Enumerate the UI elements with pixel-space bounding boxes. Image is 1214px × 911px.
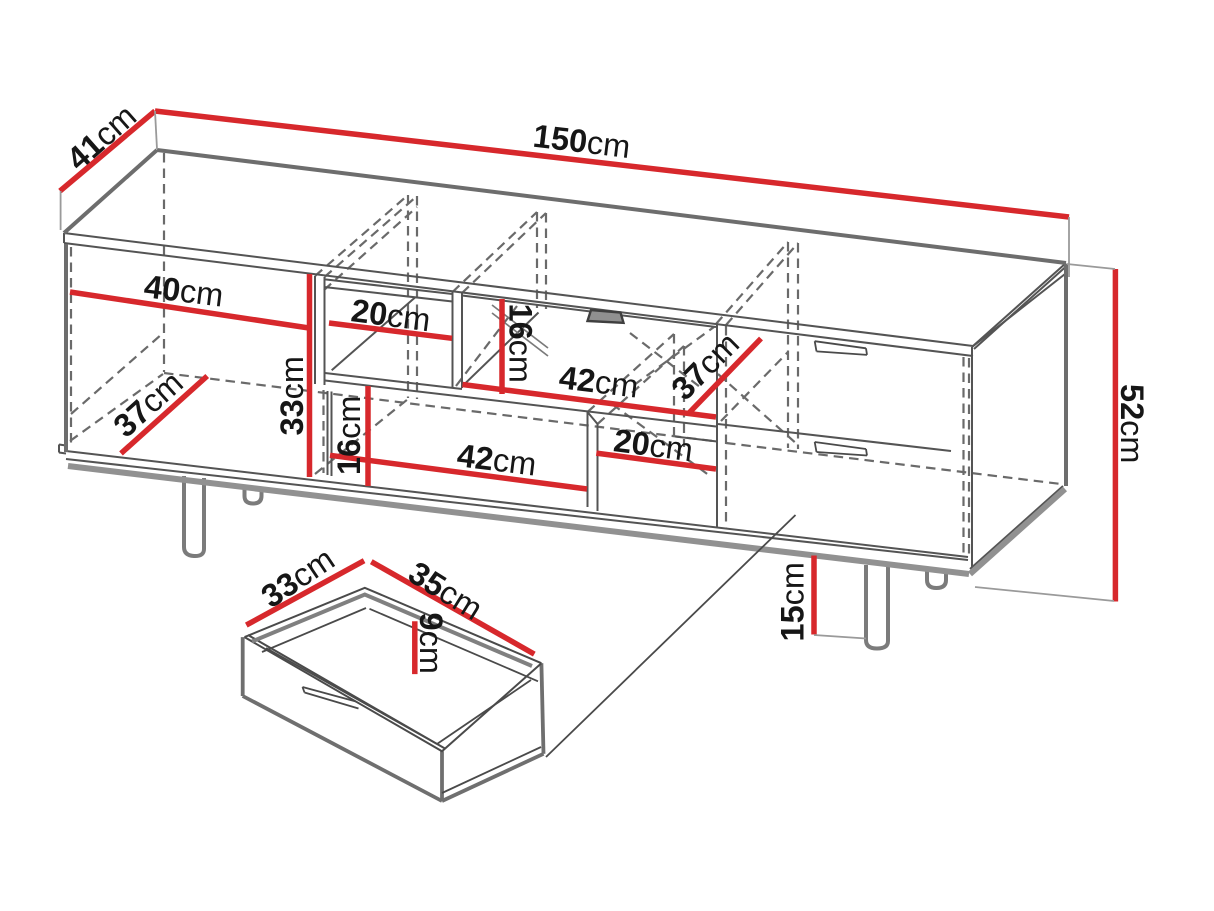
svg-text:16cm: 16cm [331, 396, 367, 475]
svg-text:9cm: 9cm [413, 613, 449, 674]
svg-text:52cm: 52cm [1114, 384, 1150, 463]
svg-text:33cm: 33cm [274, 356, 310, 435]
svg-text:16cm: 16cm [503, 304, 539, 383]
svg-text:15cm: 15cm [775, 562, 811, 641]
